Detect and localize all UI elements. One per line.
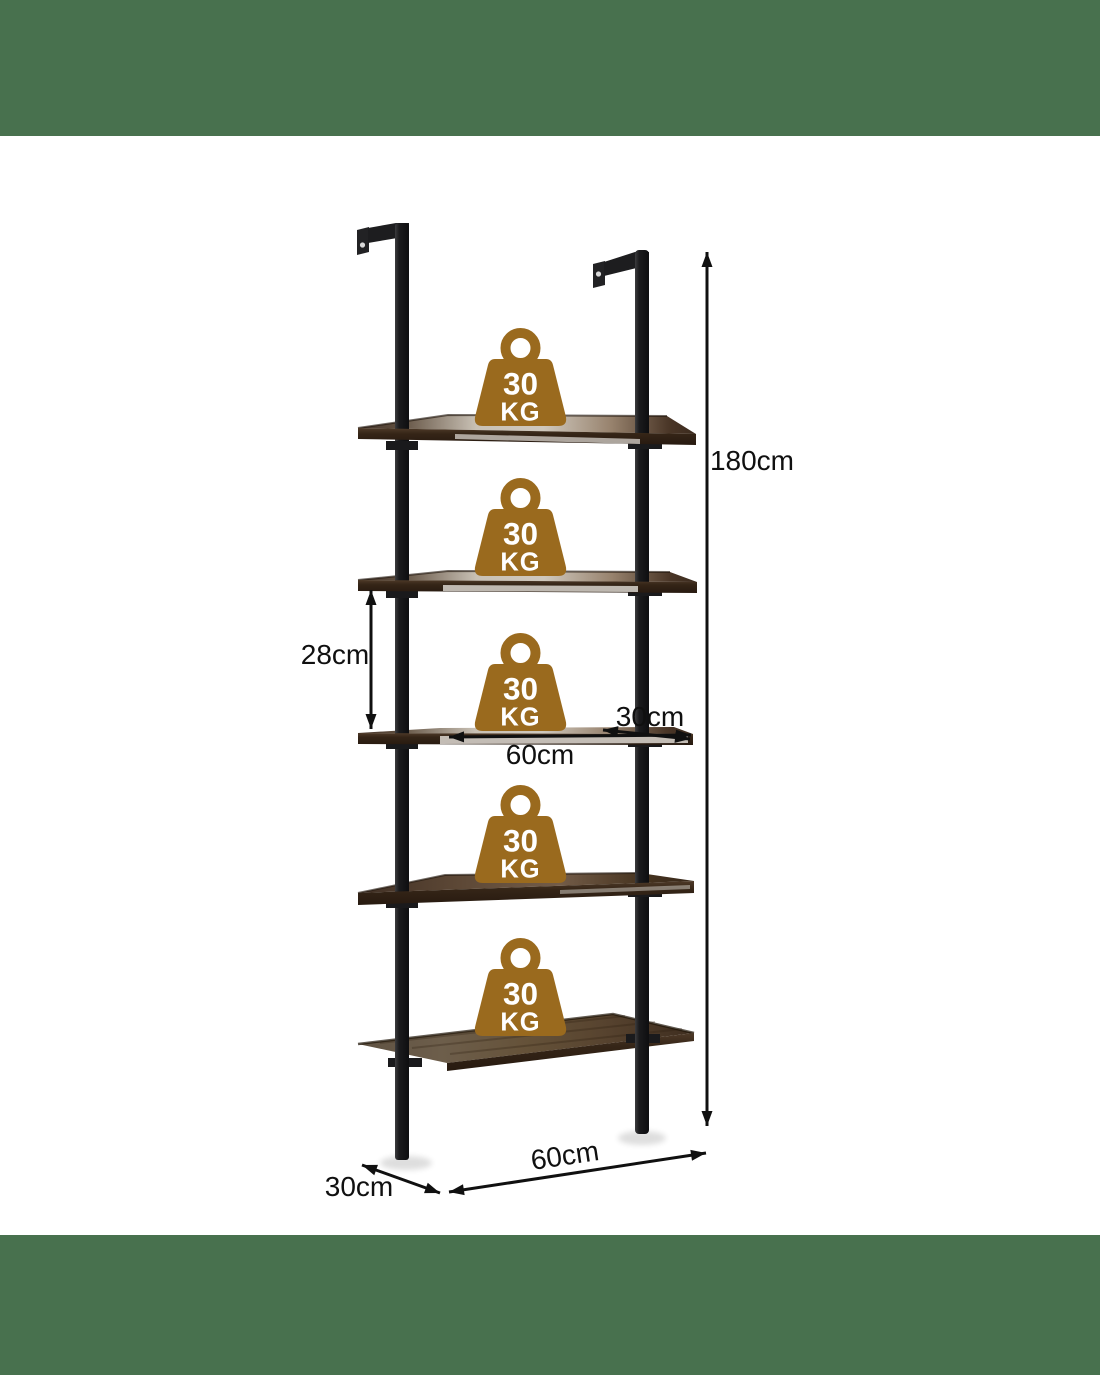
left-wall-bracket-plate (357, 227, 369, 255)
shelf-1-support-bracket (386, 441, 418, 450)
shelf-depth-label: 30cm (616, 701, 684, 732)
right-bracket-screw-hole (596, 271, 601, 276)
left-bracket-screw-hole (360, 242, 365, 247)
product-illustration: 30 KG (0, 0, 1100, 1375)
top-green-band (0, 0, 1100, 136)
height-dimension-label: 180cm (710, 445, 794, 476)
shelf-2-highlight (443, 585, 638, 592)
left-post (395, 223, 409, 1160)
shelf-width-arrow (449, 735, 691, 737)
shelf-spacing-label: 28cm (301, 639, 369, 670)
product-image: 30 KG (0, 0, 1100, 1375)
bottom-green-band (0, 1235, 1100, 1375)
base-depth-label: 30cm (325, 1171, 393, 1202)
shelf-width-label: 60cm (506, 739, 574, 770)
right-post (635, 250, 649, 1134)
